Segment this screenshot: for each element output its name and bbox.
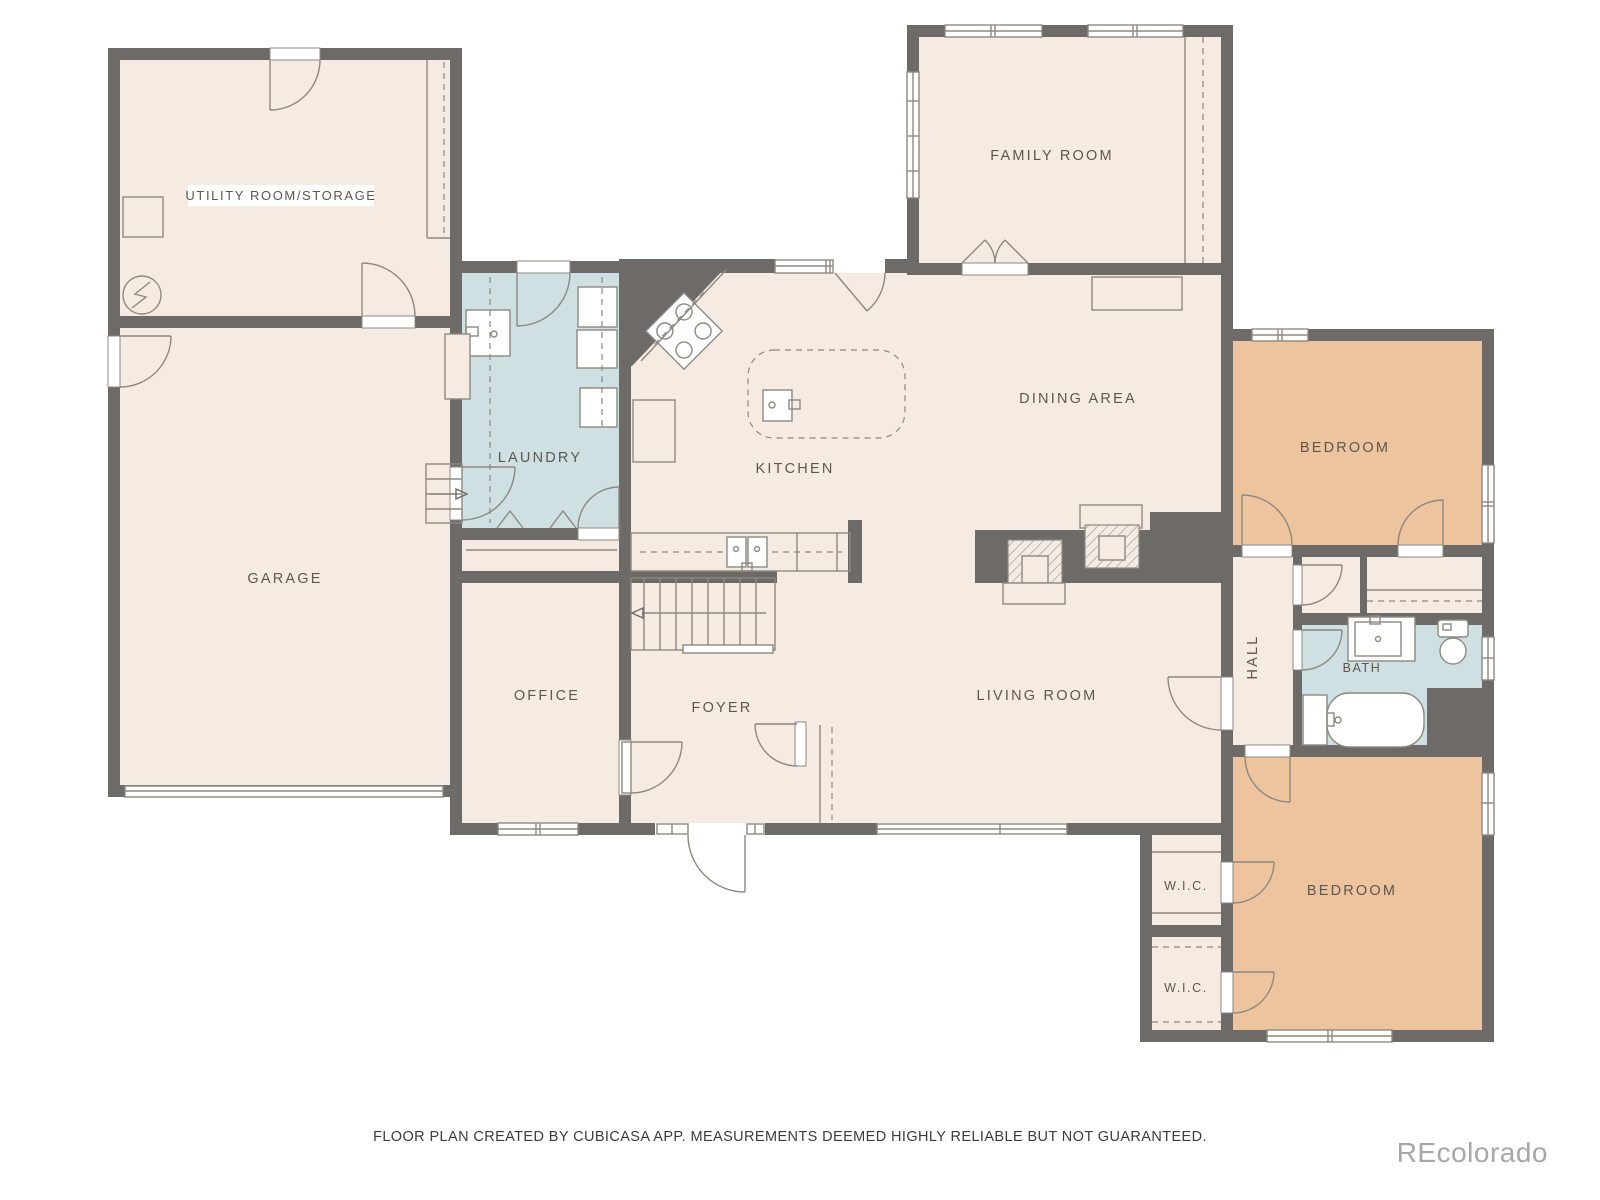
foyer-label: FOYER [692, 700, 753, 716]
garage-alcove [445, 334, 470, 399]
living-room-label: LIVING ROOM [977, 688, 1098, 704]
hall-floor [1233, 557, 1293, 745]
family-room-label: FAMILY ROOM [990, 148, 1114, 164]
front-door-sidelites [657, 824, 764, 834]
kitchen-label: KITCHEN [755, 461, 834, 477]
bedroom1-side-window [1482, 465, 1494, 543]
office-label: OFFICE [514, 688, 580, 704]
bedroom2-label: BEDROOM [1307, 883, 1397, 899]
floor-plan-page: UTILITY ROOM/STORAGE GARAGE LAUNDRY KITC… [0, 0, 1600, 1200]
family-room-window-2 [1088, 25, 1183, 37]
bath-window [1482, 637, 1494, 680]
wic2-label: W.I.C. [1164, 981, 1208, 995]
appliance-icon [580, 388, 617, 427]
closet-b-floor [1367, 557, 1482, 613]
stair-handrail [683, 645, 773, 653]
family-room-window-1 [945, 25, 1042, 37]
bedroom2-bottom-window [1267, 1030, 1392, 1042]
garage-label: GARAGE [247, 571, 322, 587]
front-door [688, 835, 745, 892]
living-room-slider [877, 824, 1067, 834]
kitchen-window [775, 260, 833, 273]
pantry-strip-floor [462, 540, 619, 571]
dining-sideboard [1092, 277, 1182, 310]
bathtub-icon [1303, 693, 1424, 747]
recolorado-watermark: REcolorado [1397, 1137, 1548, 1168]
dryer-icon [577, 330, 617, 368]
bedroom1-top-window [1252, 329, 1308, 341]
laundry-label: LAUNDRY [498, 450, 582, 466]
disclaimer-text: FLOOR PLAN CREATED BY CUBICASA APP. MEAS… [373, 1129, 1207, 1145]
garage-door [125, 786, 443, 797]
bedroom2-side-window [1482, 773, 1494, 835]
utility-room-label: UTILITY ROOM/STORAGE [185, 188, 376, 203]
bedroom1-label: BEDROOM [1300, 440, 1390, 456]
hall-label: HALL [1245, 634, 1261, 679]
family-room-side-window [907, 72, 919, 198]
hearth-living [1003, 583, 1065, 604]
vanity-sink-icon [1348, 616, 1415, 661]
dining-area-label: DINING AREA [1019, 391, 1137, 407]
laundry-sink-icon [466, 310, 510, 356]
garage-floor [120, 328, 450, 785]
washer-icon [578, 287, 617, 327]
office-window [498, 823, 578, 835]
floor-plan-drawing: UTILITY ROOM/STORAGE GARAGE LAUNDRY KITC… [0, 0, 1600, 1200]
wic1-label: W.I.C. [1164, 879, 1208, 893]
bath-label: BATH [1343, 661, 1382, 675]
